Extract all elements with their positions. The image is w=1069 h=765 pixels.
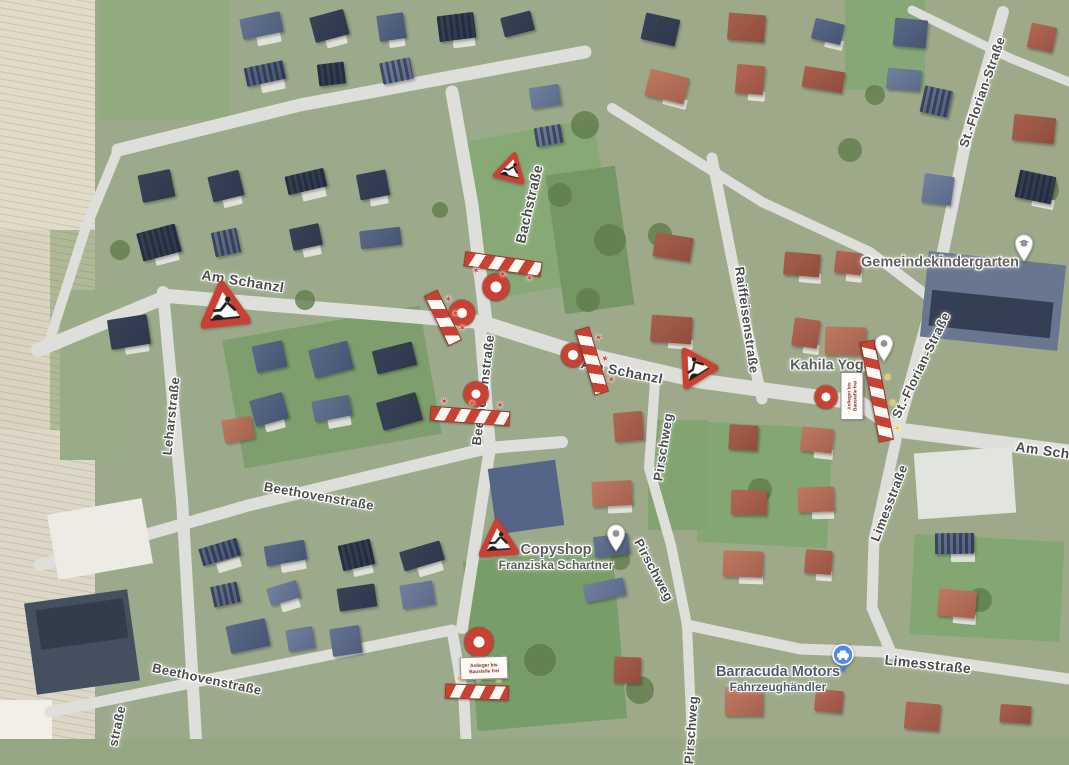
satellite-map[interactable]: Am SchanzlBachstraßeAm SchanzlAm Schanzl… bbox=[0, 0, 1069, 739]
poi-pin-gemeindekindergarten[interactable] bbox=[1013, 234, 1035, 267]
poi-pins-layer bbox=[0, 0, 1069, 739]
poi-pin-copyshop[interactable] bbox=[605, 524, 627, 557]
poi-pin-kahila-yoga[interactable] bbox=[873, 334, 895, 367]
poi-pin-barracuda-motors[interactable] bbox=[831, 643, 855, 678]
